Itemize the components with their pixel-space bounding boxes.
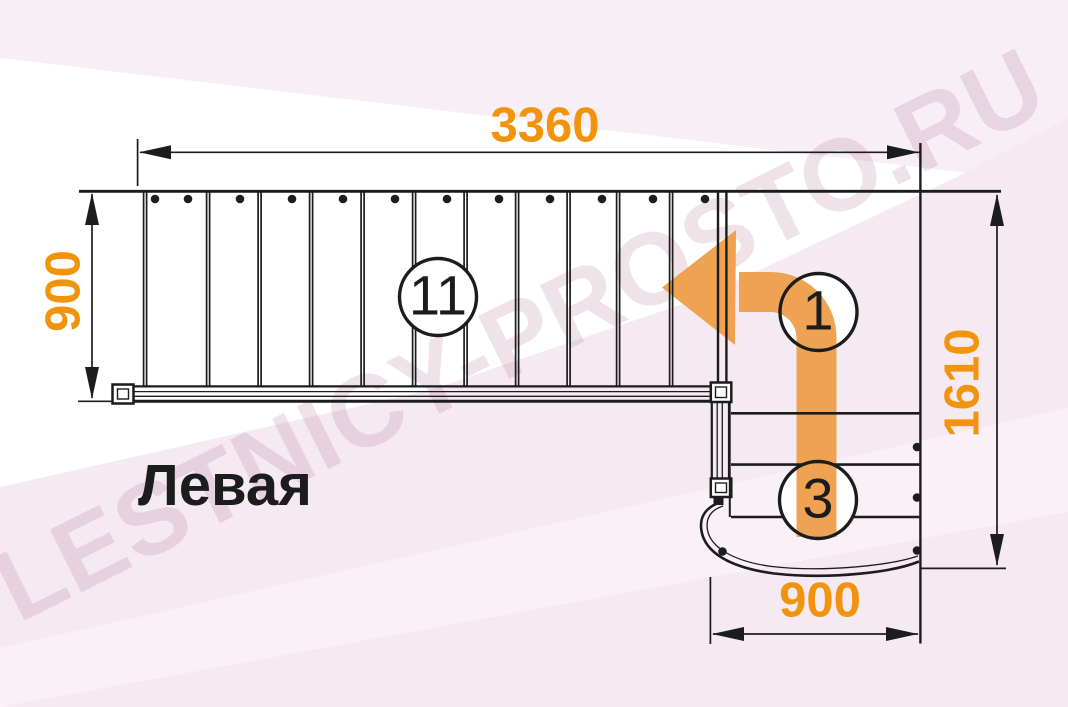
corner-newel-post (711, 383, 732, 403)
upper-flight-step-count: 11 (409, 267, 467, 323)
orientation-label: Левая (138, 457, 312, 515)
linework (78, 139, 1006, 644)
dimension-label-top: 3360 (490, 102, 599, 151)
dimension-label-bottom: 900 (779, 577, 861, 626)
staircase-plan-canvas: LESTNICY-PROSTO.RU (0, 0, 1068, 707)
lower-flight-step-count: 3 (802, 470, 833, 526)
dimension-label-right: 1610 (939, 328, 988, 437)
baluster-dots-top (151, 195, 710, 204)
turn-step-count: 1 (802, 282, 833, 338)
upper-stringer (78, 386, 711, 401)
dimension-label-left: 900 (40, 250, 89, 332)
lower-stringer (711, 402, 732, 505)
left-newel-post (113, 385, 134, 404)
